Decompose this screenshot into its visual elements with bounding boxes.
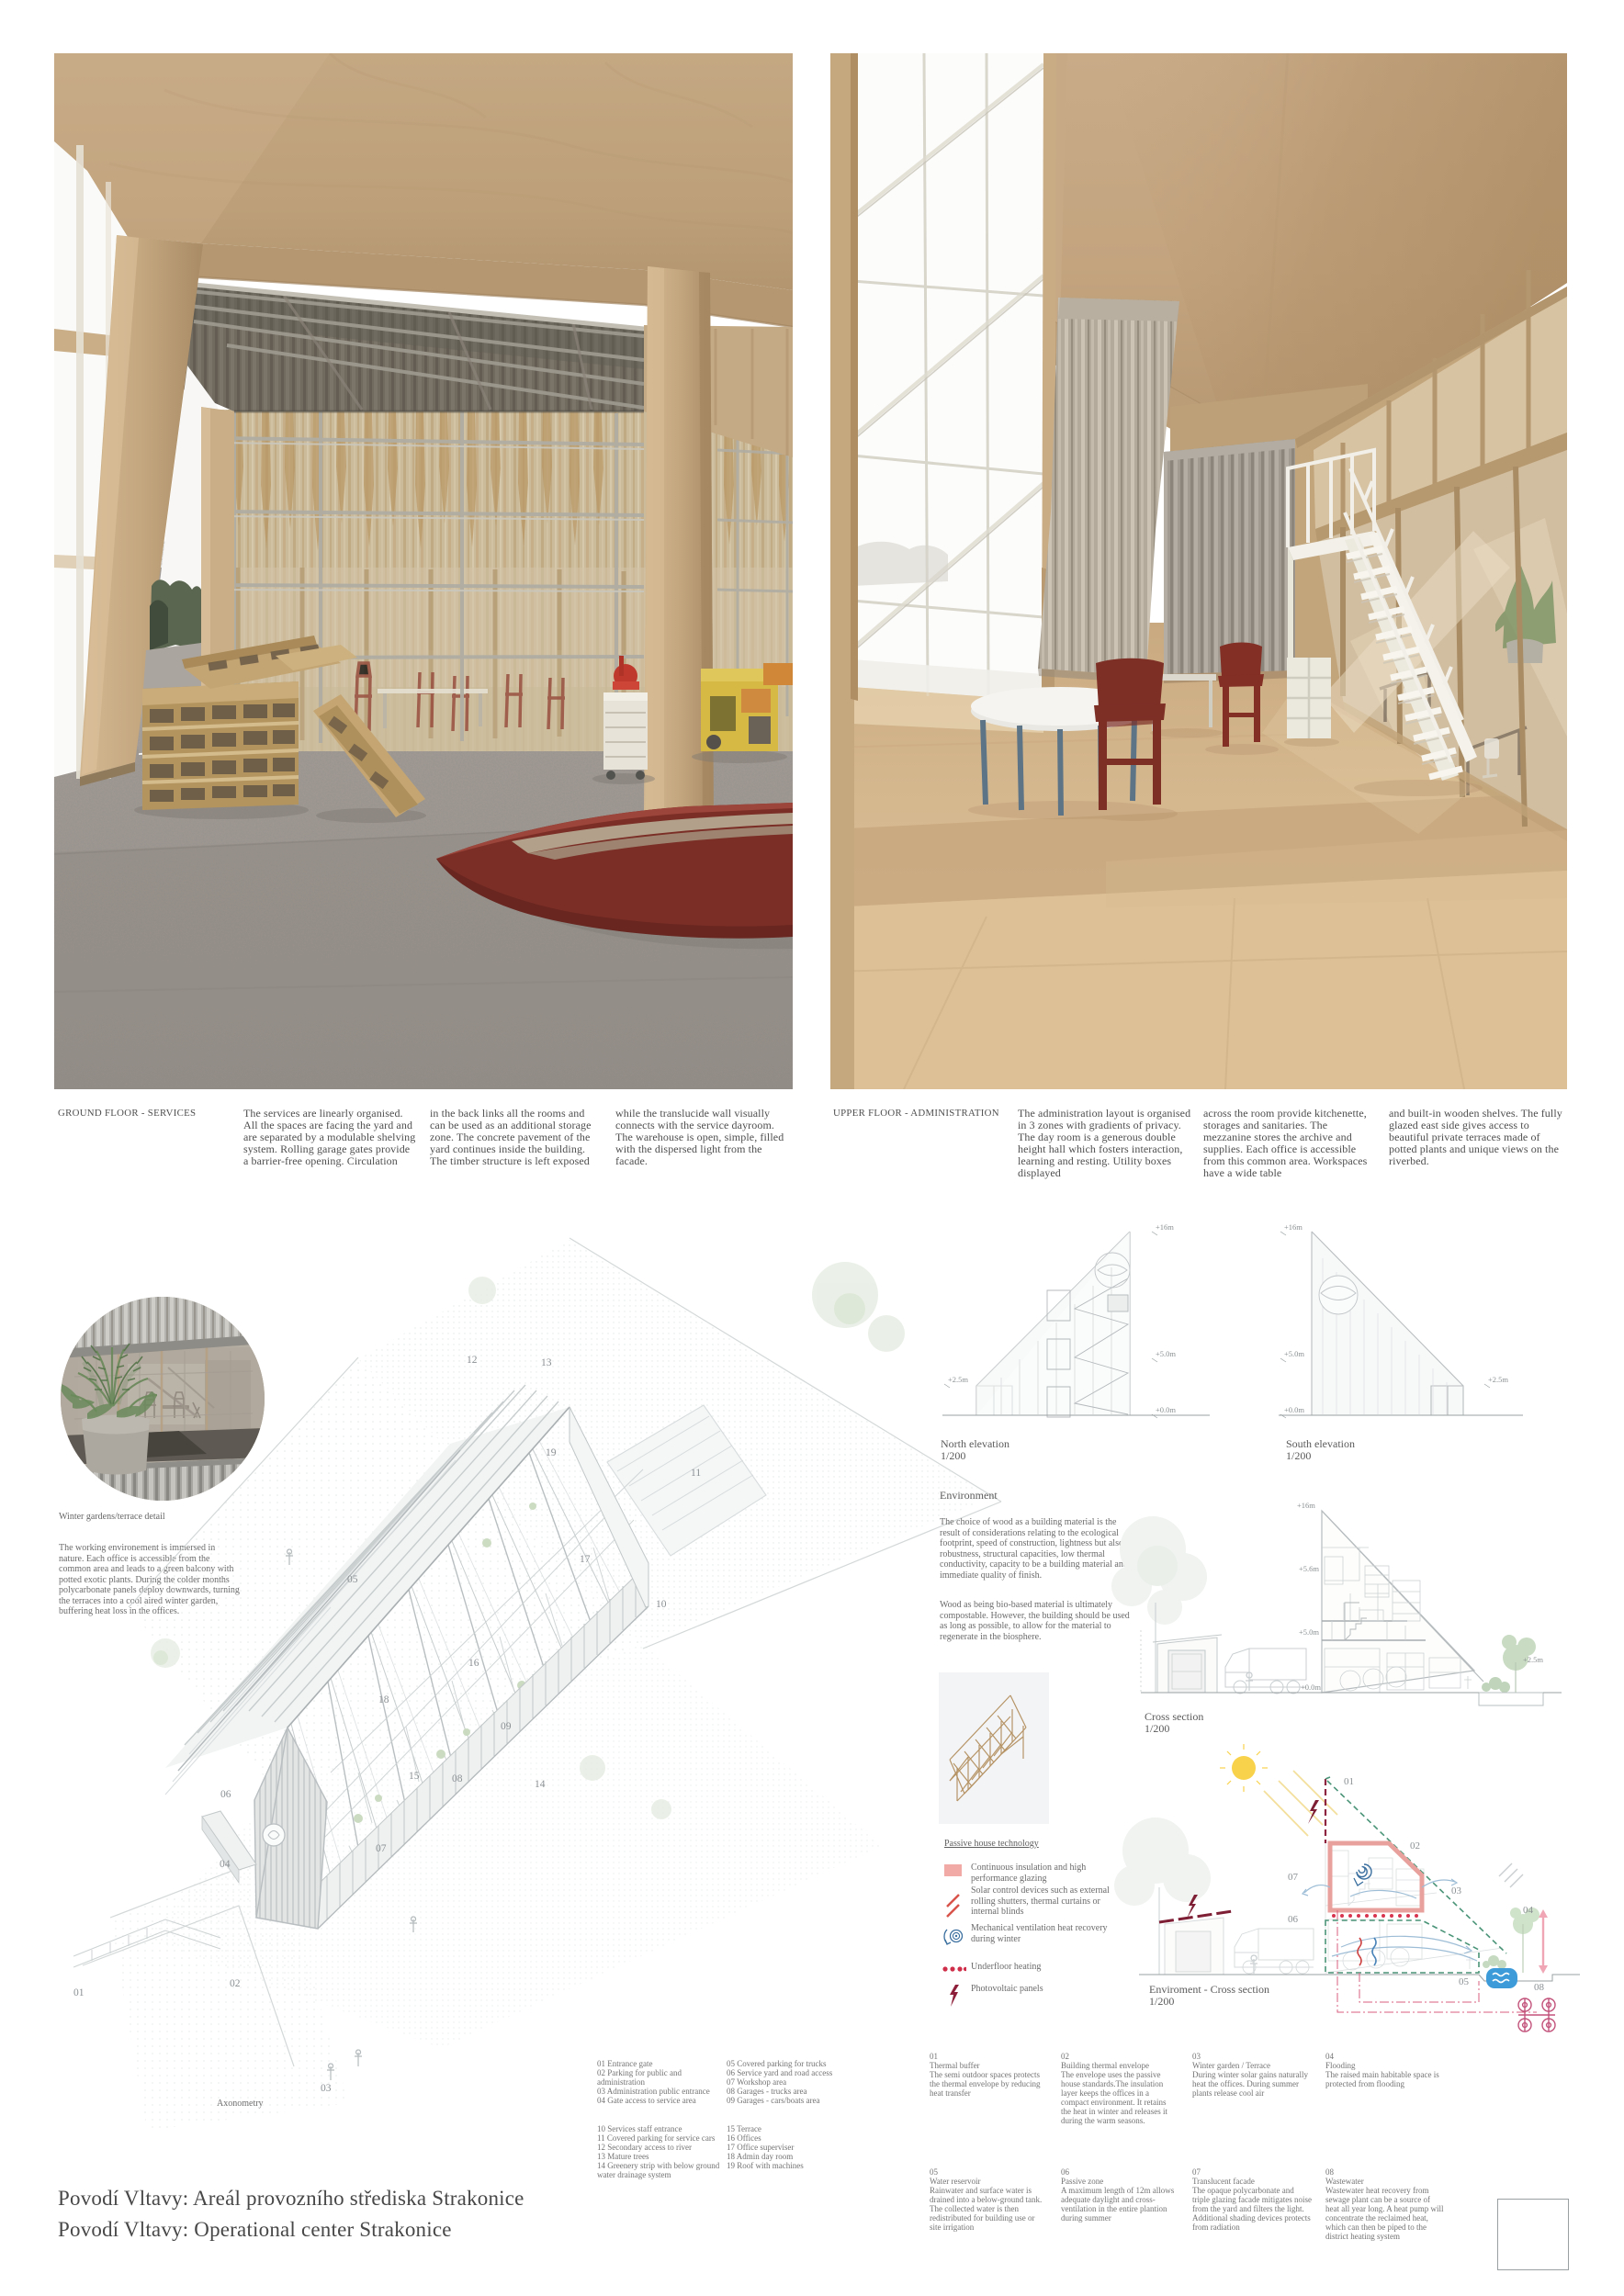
svg-text:08: 08 <box>452 1773 463 1784</box>
svg-text:15: 15 <box>409 1771 420 1782</box>
svg-text:06: 06 <box>220 1789 231 1800</box>
svg-text:02: 02 <box>230 1978 241 1989</box>
svg-text:+0.0m: +0.0m <box>1156 1405 1176 1414</box>
svg-text:12: 12 <box>467 1355 478 1366</box>
svg-text:+2.5m: +2.5m <box>948 1375 968 1384</box>
svg-text:11: 11 <box>691 1468 701 1479</box>
svg-text:+5.0m: +5.0m <box>1156 1349 1176 1358</box>
svg-text:07: 07 <box>376 1843 387 1854</box>
svg-text:+16m: +16m <box>1297 1501 1315 1510</box>
svg-text:+0.0m: +0.0m <box>1284 1405 1304 1414</box>
svg-text:14: 14 <box>535 1779 546 1790</box>
svg-text:+16m: +16m <box>1156 1222 1174 1232</box>
svg-text:04: 04 <box>220 1859 231 1870</box>
svg-text:02: 02 <box>1410 1840 1420 1851</box>
svg-text:17: 17 <box>580 1554 591 1565</box>
svg-text:05: 05 <box>347 1574 358 1585</box>
svg-text:13: 13 <box>541 1357 552 1368</box>
svg-text:08: 08 <box>1534 1982 1545 1993</box>
svg-text:03: 03 <box>1451 1885 1462 1896</box>
svg-text:+2.5m: +2.5m <box>1523 1655 1543 1664</box>
svg-text:10: 10 <box>656 1599 667 1610</box>
svg-text:+16m: +16m <box>1284 1222 1303 1232</box>
svg-text:19: 19 <box>546 1447 557 1458</box>
svg-text:07: 07 <box>1288 1872 1299 1883</box>
svg-text:06: 06 <box>1288 1914 1299 1925</box>
svg-text:18: 18 <box>378 1694 389 1705</box>
svg-text:01: 01 <box>73 1987 85 1998</box>
svg-text:09: 09 <box>501 1721 512 1732</box>
svg-text:+2.5m: +2.5m <box>1488 1375 1508 1384</box>
svg-text:05: 05 <box>1459 1976 1470 1987</box>
svg-text:+0.0m: +0.0m <box>1301 1683 1321 1692</box>
svg-text:+5.6m: +5.6m <box>1299 1564 1319 1573</box>
svg-text:01: 01 <box>1344 1776 1354 1787</box>
svg-text:16: 16 <box>468 1658 479 1669</box>
svg-text:03: 03 <box>321 2083 332 2094</box>
svg-text:+5.0m: +5.0m <box>1284 1349 1304 1358</box>
svg-text:+5.0m: +5.0m <box>1299 1627 1319 1637</box>
svg-text:04: 04 <box>1523 1905 1534 1916</box>
